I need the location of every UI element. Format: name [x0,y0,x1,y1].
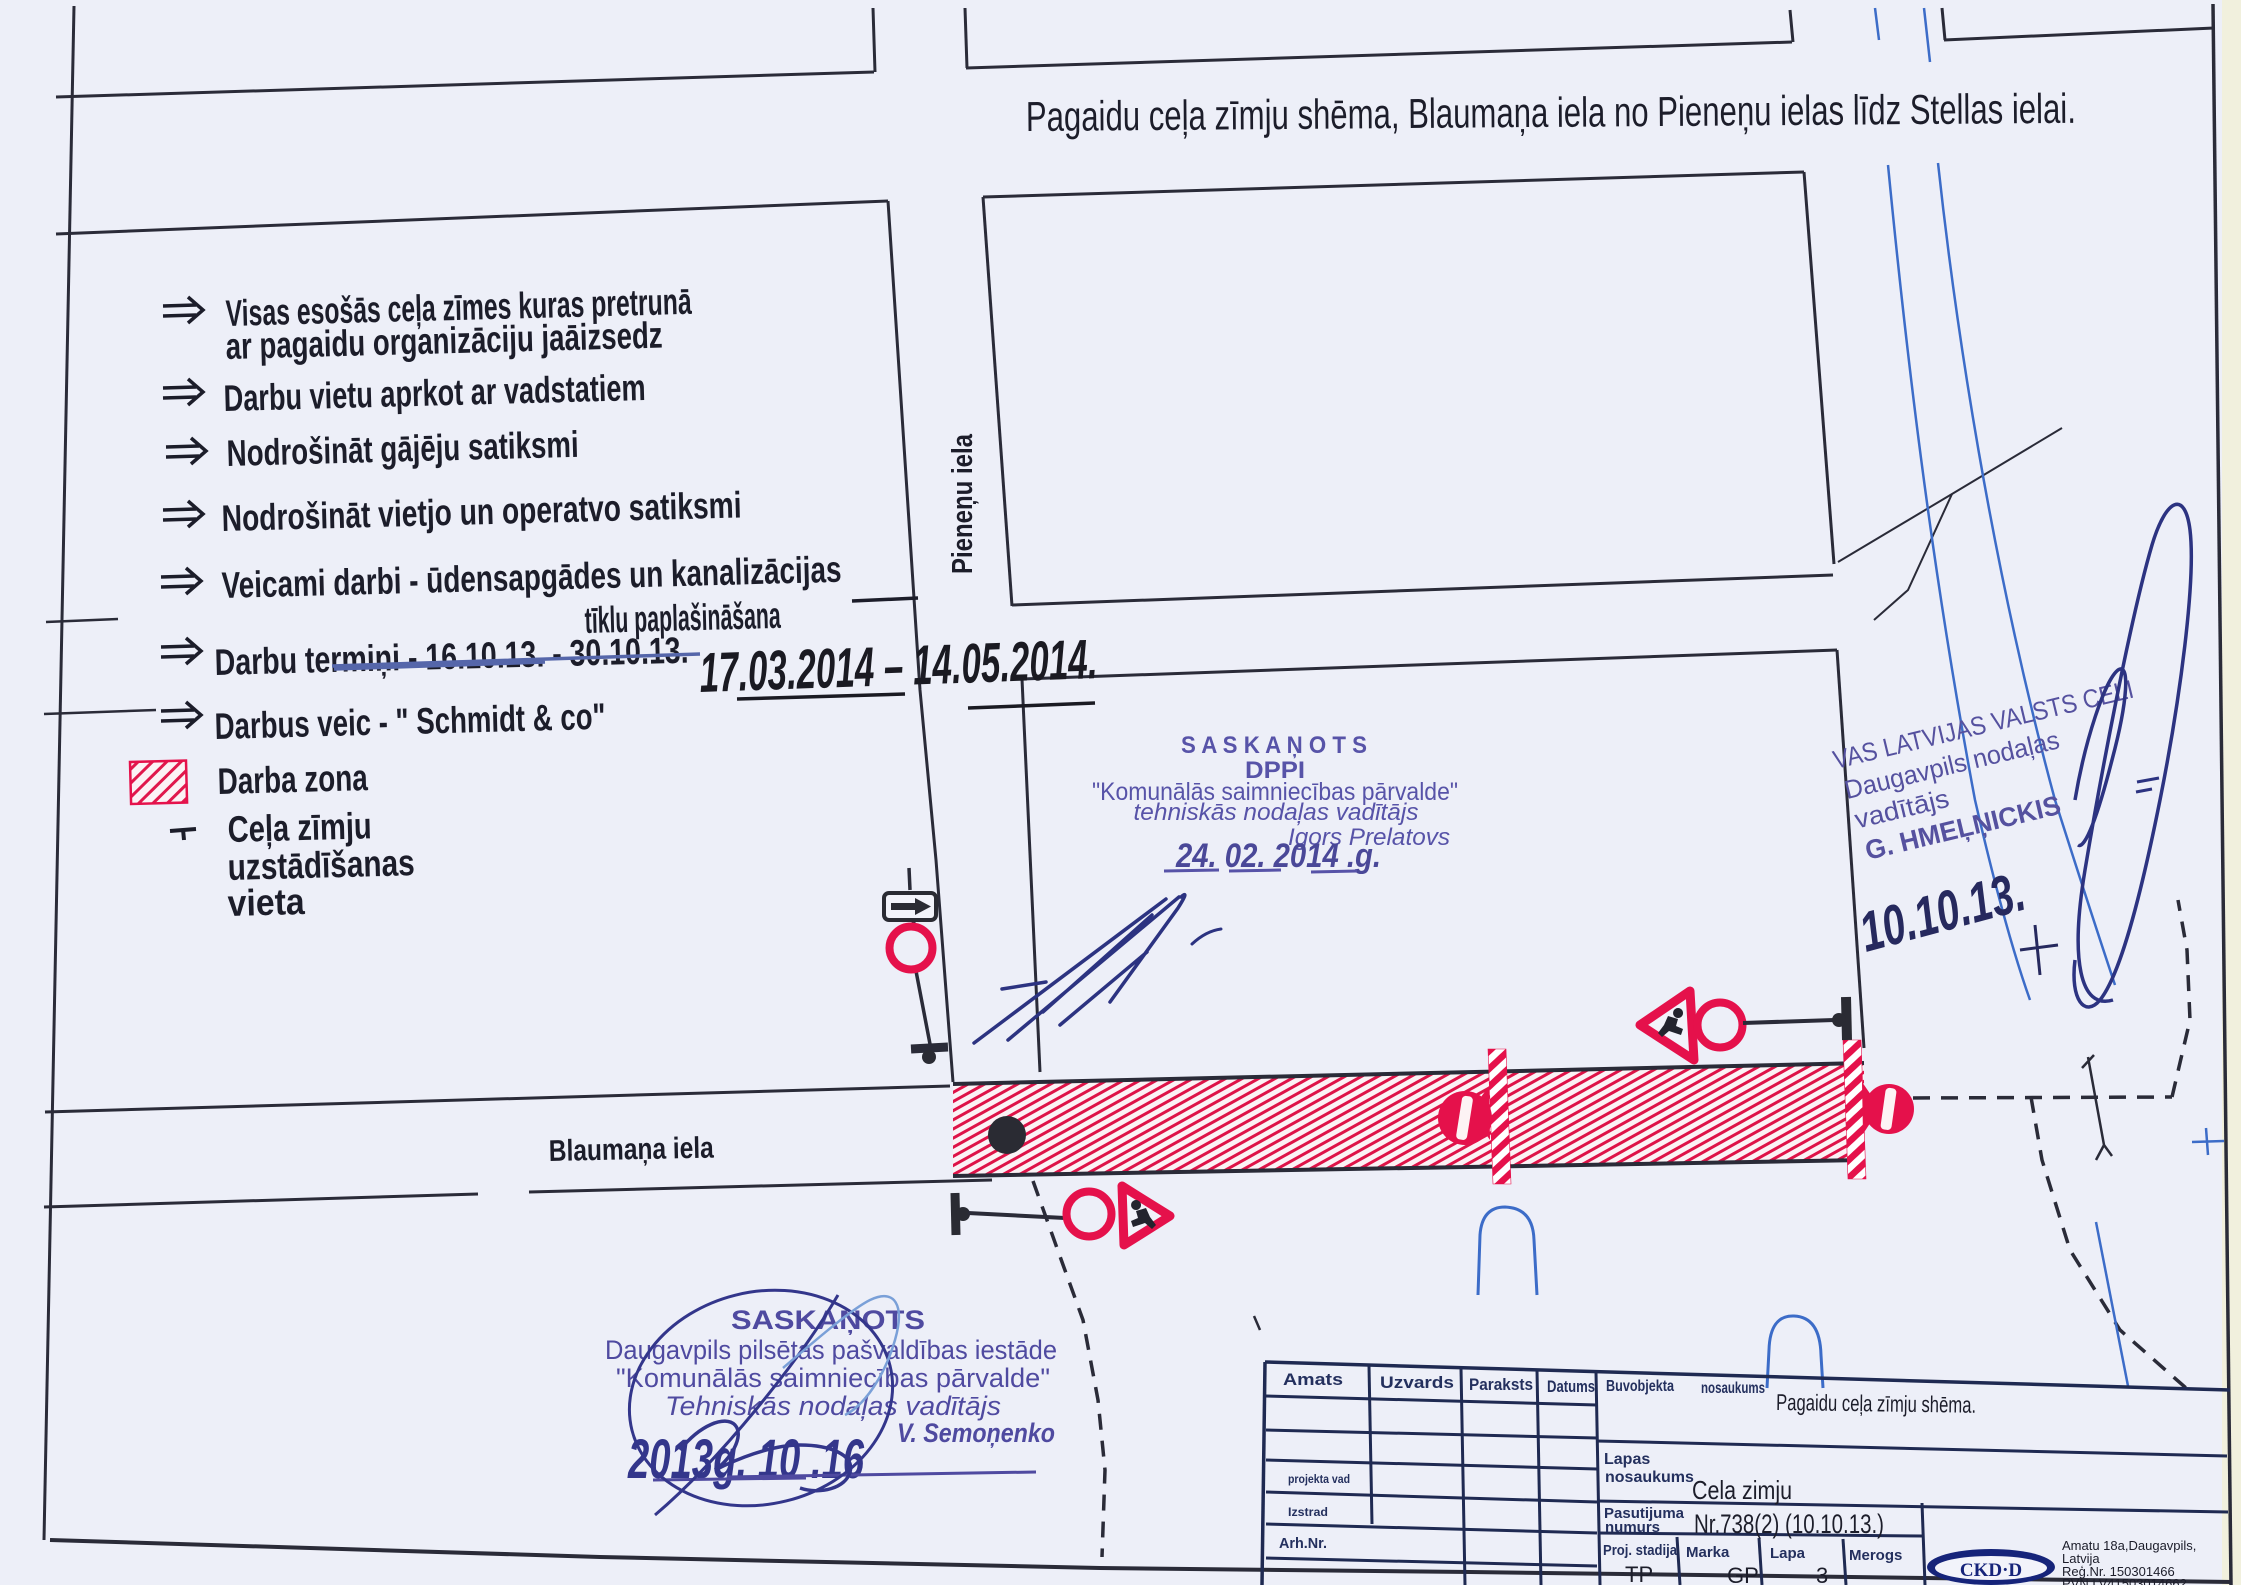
svg-text:GP: GP [1727,1563,1759,1585]
svg-text:Izstrad: Izstrad [1288,1505,1328,1519]
svg-text:3: 3 [1816,1563,1828,1585]
svg-text:V. Semoņenko: V. Semoņenko [897,1418,1055,1448]
svg-text:Blaumaņa iela: Blaumaņa iela [548,1132,714,1168]
svg-text:Daugavpils pilsētas pašvaldība: Daugavpils pilsētas pašvaldības iestāde [605,1335,1057,1365]
svg-text:nosaukums: nosaukums [1605,1469,1694,1486]
svg-text:numurs: numurs [1605,1519,1660,1536]
svg-text:Lapas: Lapas [1604,1451,1650,1468]
svg-text:tehniskās nodaļas vadītājs: tehniskās nodaļas vadītājs [1134,799,1419,826]
svg-text:CKD·D: CKD·D [1960,1560,2022,1581]
svg-text:Darba zona: Darba zona [217,757,368,802]
svg-text:Paraksts: Paraksts [1469,1375,1533,1394]
svg-text:Pagaidu ceļa zīmju shēma, Blau: Pagaidu ceļa zīmju shēma, Blaumaņa iela … [1026,85,2076,140]
svg-text:Arh.Nr.: Arh.Nr. [1279,1535,1327,1552]
svg-text:uzstādīšanas: uzstādīšanas [227,842,415,888]
svg-text:Buvobjekta: Buvobjekta [1606,1378,1674,1395]
svg-text:vieta: vieta [227,881,305,924]
svg-text:Cela zimju: Cela zimju [1692,1475,1792,1505]
svg-text:Lapa: Lapa [1770,1545,1806,1562]
svg-text:Datums: Datums [1547,1377,1595,1396]
svg-text:Uzvards: Uzvards [1380,1373,1454,1392]
svg-text:S A S K A Ņ O T S: S A S K A Ņ O T S [1181,732,1367,759]
svg-text:Tehniskās nodaļas vadītājs: Tehniskās nodaļas vadītājs [665,1391,1001,1421]
svg-text:Marka: Marka [1686,1544,1730,1561]
svg-text:"Komunālās saimniecības pārval: "Komunālās saimniecības pārvalde" [616,1363,1050,1393]
svg-text:Amats: Amats [1283,1370,1343,1389]
svg-text:PVN LV41503014662: PVN LV41503014662 [2062,1576,2187,1585]
svg-text:projekta vad: projekta vad [1288,1472,1350,1486]
svg-text:TP: TP [1625,1562,1653,1585]
svg-text:Pieneņu iela: Pieneņu iela [947,433,979,574]
svg-text:Pagaidu ceļa zīmju shēma.: Pagaidu ceļa zīmju shēma. [1776,1389,1976,1418]
svg-text:nosaukums: nosaukums [1701,1380,1765,1397]
svg-text:Proj. stadija: Proj. stadija [1603,1542,1678,1559]
svg-text:Nr.738(2) (10.10.13.): Nr.738(2) (10.10.13.) [1694,1509,1884,1539]
svg-text:Merogs: Merogs [1849,1547,1902,1564]
